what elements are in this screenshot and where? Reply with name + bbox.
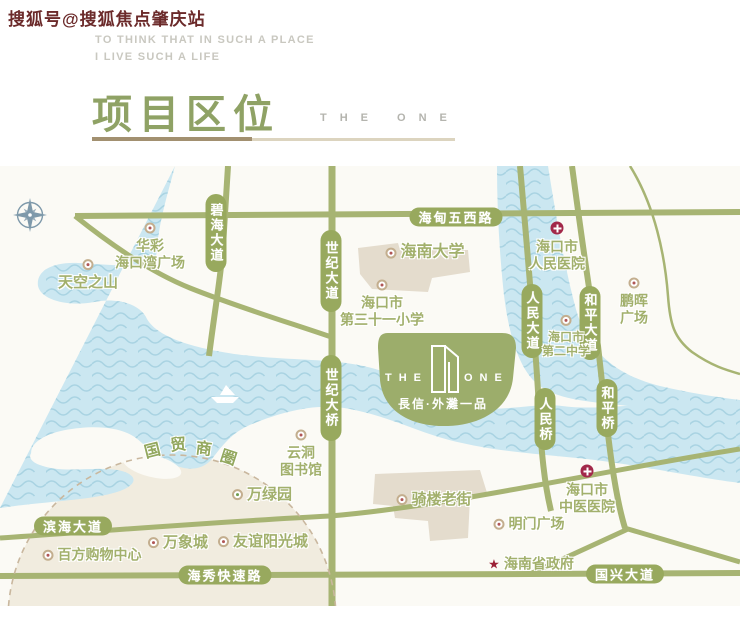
poi-dot-icon	[82, 259, 93, 270]
poi-penghui-plaza: 鹏晖广场	[620, 292, 648, 325]
poi-icon-wrap	[581, 464, 594, 482]
poi-label: 海南省政府	[504, 556, 574, 573]
poi-label: 天空之山	[58, 274, 118, 292]
road-label-haidian-5th-west-road: 海甸五西路	[409, 208, 502, 227]
road-label-guoxing-avenue: 国兴大道	[586, 565, 664, 584]
poi-sky-mountain: 天空之山	[58, 274, 118, 292]
poi-label: 海口市第三十一小学	[340, 294, 424, 327]
poi-icon-wrap	[629, 275, 640, 293]
road-label-haixiu-expressway: 海秀快速路	[178, 566, 271, 585]
poi-hainan-university: 海南大学	[385, 244, 464, 263]
road-label-renmin-bridge: 人民桥	[535, 388, 556, 450]
poi-qilou-old-street: 骑楼老街	[396, 491, 471, 509]
poi-hainan-provincial-government: ★海南省政府	[488, 556, 574, 573]
poi-wanxiang-city-mall: 万象城	[148, 534, 208, 552]
poi-no31-primary-school: 海口市第三十一小学	[340, 294, 424, 327]
poi-yundong-library: 云洞图书馆	[280, 444, 322, 477]
poi-icon-wrap	[296, 427, 307, 445]
poi-youyi-sunshine-city: 友谊阳光城	[218, 533, 308, 551]
poi-tcm-hospital: 海口市中医医院	[559, 481, 615, 514]
poi-dot-icon	[494, 518, 505, 529]
brand-wordmark: THE ONE	[320, 112, 460, 124]
poi-icon-wrap	[82, 257, 93, 275]
road-label-bihai-avenue: 碧海大道	[206, 194, 227, 272]
road-label-shiji-bridge: 世纪大桥	[321, 355, 342, 441]
poi-dot-icon	[377, 279, 388, 290]
district-arc-char-2: 商	[195, 434, 214, 460]
poi-dot-icon	[385, 248, 396, 259]
map-labels-layer: 海甸五西路碧海大道世纪大道世纪大桥人民大道和平大道人民桥和平桥滨海大道海秀快速路…	[0, 166, 740, 606]
poi-label: 骑楼老街	[411, 491, 471, 509]
park-poi-icon	[232, 490, 243, 501]
page-title: 项目区位	[92, 82, 280, 140]
poi-dot-icon	[148, 538, 159, 549]
poi-mingmen-plaza: 明门广场	[494, 516, 565, 533]
sohu-account-label: 搜狐号@搜狐焦点肇庆站	[8, 5, 206, 30]
location-map: THE ONE 長信·外灘一品 海甸五西路碧海大道世纪大道世纪大桥人民大道和平大…	[0, 166, 740, 606]
poi-baifang-shopping-center: 百方购物中心	[43, 547, 142, 564]
poi-dot-icon	[296, 429, 307, 440]
road-label-heping-bridge: 和平桥	[597, 379, 618, 437]
road-label-shiji-avenue: 世纪大道	[321, 230, 342, 312]
title-underline-dark	[92, 137, 252, 141]
poi-label: 万绿园	[247, 486, 292, 504]
poi-icon-wrap	[551, 221, 564, 239]
road-label-renmin-avenue: 人民大道	[522, 284, 543, 358]
poi-label: 明门广场	[509, 516, 565, 533]
poi-label: 友谊阳光城	[233, 533, 308, 551]
poi-label: 海口市人民医院	[529, 238, 585, 271]
poi-label: 云洞图书馆	[280, 444, 322, 477]
poi-label: 万象城	[163, 534, 208, 552]
poi-no2-middle-school: 海口市第二中学	[542, 330, 590, 358]
poi-dot-icon	[43, 549, 54, 560]
poi-dot-icon	[629, 277, 640, 288]
title-underline-light	[252, 138, 455, 141]
tagline-line1: TO THINK THAT IN SUCH A PLACE	[95, 34, 315, 46]
tagline-line2: I LIVE SUCH A LIFE	[95, 51, 220, 63]
district-arc-char-1: 贸	[169, 430, 187, 455]
poi-icon-wrap	[560, 313, 571, 331]
road-label-binhai-avenue: 滨海大道	[34, 517, 112, 536]
poi-huacai-haikou-bay-plaza: 华彩海口湾广场	[115, 237, 185, 270]
star-icon: ★	[488, 557, 500, 570]
poi-renmin-hospital: 海口市人民医院	[529, 238, 585, 271]
poi-icon-wrap	[377, 277, 388, 295]
poi-label: 华彩海口湾广场	[115, 237, 185, 270]
poi-label: 鹏晖广场	[620, 292, 648, 325]
poi-label: 百方购物中心	[58, 547, 142, 564]
poi-label: 海口市中医医院	[559, 481, 615, 514]
poi-dot-icon	[218, 537, 229, 548]
poi-dot-icon	[396, 495, 407, 506]
hospital-icon	[581, 464, 594, 477]
poi-label: 海口市第二中学	[542, 330, 590, 358]
poi-dot-icon	[145, 222, 156, 233]
district-arc-char-0: 国	[141, 435, 162, 462]
poi-wanlv-park: 万绿园	[232, 486, 292, 504]
poi-dot-icon	[560, 315, 571, 326]
poi-icon-wrap	[145, 220, 156, 238]
poi-label: 海南大学	[400, 244, 464, 263]
district-arc-char-3: 圈	[218, 442, 241, 470]
hospital-icon	[551, 221, 564, 234]
